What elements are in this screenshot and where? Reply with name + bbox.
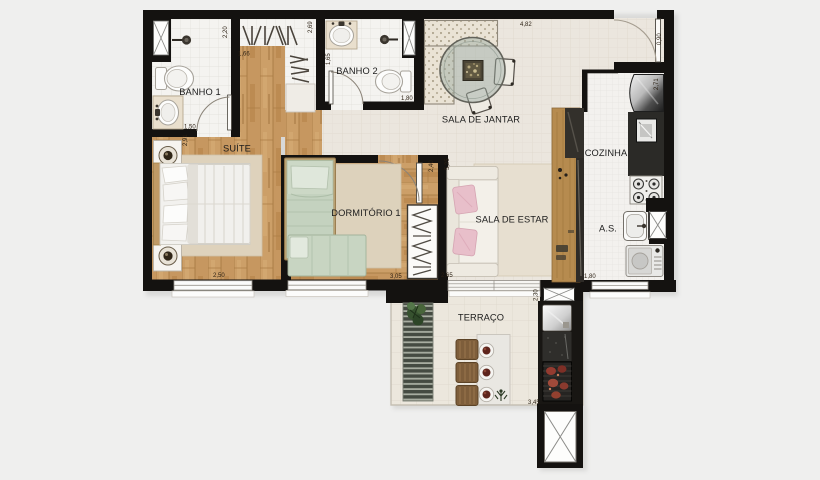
svg-text:SALA DE JANTAR: SALA DE JANTAR — [442, 115, 520, 125]
svg-text:1,80: 1,80 — [401, 96, 413, 102]
svg-text:2,20: 2,20 — [223, 26, 229, 38]
svg-text:BANHO 2: BANHO 2 — [336, 66, 378, 76]
svg-text:SALA DE ESTAR: SALA DE ESTAR — [476, 215, 549, 225]
svg-text:2,91: 2,91 — [183, 134, 189, 146]
svg-text:3,45: 3,45 — [528, 400, 540, 406]
svg-text:5,25: 5,25 — [445, 158, 451, 170]
svg-text:1,65: 1,65 — [326, 53, 332, 65]
svg-text:1,66: 1,66 — [238, 52, 250, 58]
svg-text:1,50: 1,50 — [184, 125, 196, 131]
svg-text:4,82: 4,82 — [520, 22, 532, 28]
svg-text:BANHO 1: BANHO 1 — [179, 87, 221, 97]
svg-text:1,80: 1,80 — [584, 274, 596, 280]
svg-text:TERRAÇO: TERRAÇO — [458, 313, 504, 323]
svg-text:2,69: 2,69 — [308, 21, 314, 33]
svg-text:DORMITÓRIO 1: DORMITÓRIO 1 — [331, 208, 400, 218]
svg-text:3,05: 3,05 — [390, 274, 402, 280]
svg-text:A.S.: A.S. — [599, 224, 617, 234]
svg-text:2,65: 2,65 — [441, 273, 453, 279]
svg-text:0,90: 0,90 — [657, 33, 663, 45]
svg-text:2,30: 2,30 — [534, 289, 540, 301]
svg-text:SUÍTE: SUÍTE — [223, 144, 251, 154]
svg-text:2,71: 2,71 — [654, 78, 660, 90]
svg-text:2,40: 2,40 — [429, 160, 435, 172]
svg-text:COZINHA: COZINHA — [585, 148, 628, 158]
svg-text:2,50: 2,50 — [213, 273, 225, 279]
